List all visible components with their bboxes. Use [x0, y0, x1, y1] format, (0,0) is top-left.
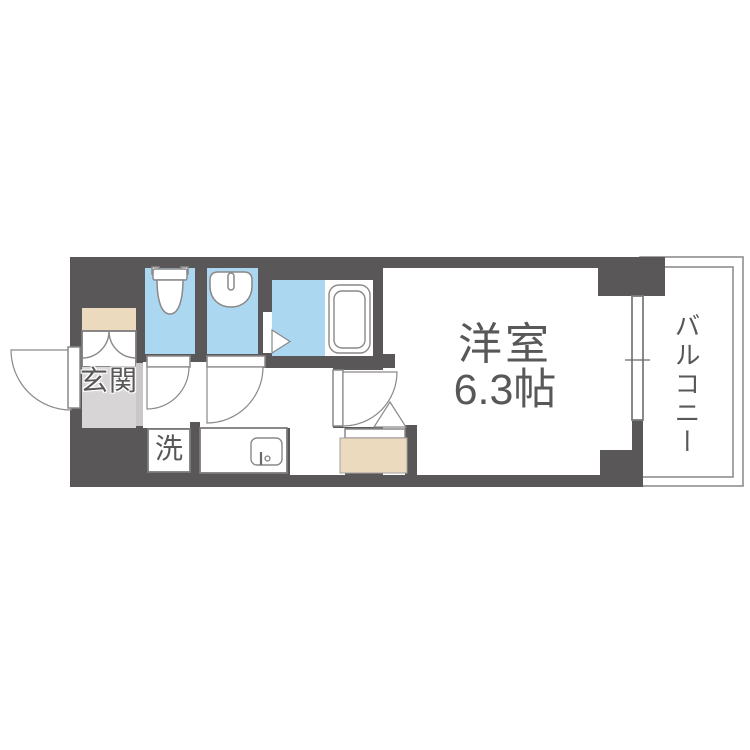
- kitchen-counter: [200, 428, 287, 473]
- wall-pillar-top-right: [598, 268, 632, 296]
- balcony-label: バルコニー: [671, 297, 701, 472]
- wall-pillar-bottom-right: [600, 450, 632, 475]
- toilet-door-leaf: [147, 356, 190, 367]
- washroom-door-leaf: [207, 356, 265, 367]
- wall-band-below-bath: [263, 354, 395, 368]
- entrance-door-swing: [11, 350, 71, 410]
- room-door-leaf: [333, 370, 343, 426]
- bath-doorway: [263, 312, 272, 353]
- entrance-label: 玄関: [80, 366, 138, 395]
- shoe-cabinet-top: [82, 308, 136, 331]
- washbasin-faucet-icon: [228, 273, 234, 290]
- balcony-window: [632, 296, 643, 420]
- room-size-label: 6.3帖: [410, 368, 600, 413]
- floorplan-canvas: 玄関 洗 洋室 6.3帖 バルコニー: [0, 0, 750, 750]
- fridge-space: [340, 438, 407, 473]
- room-name-label: 洋室: [410, 322, 600, 368]
- fridge-counter-edge: [345, 429, 405, 438]
- entrance-door-leaf: [68, 347, 80, 408]
- laundry-label: 洗: [148, 434, 190, 463]
- wall-block-balcony-top: [643, 257, 665, 296]
- wall-stub-kitchen-left: [190, 422, 200, 475]
- toilet-tank-icon: [153, 269, 187, 280]
- kitchen-floor: [290, 428, 345, 475]
